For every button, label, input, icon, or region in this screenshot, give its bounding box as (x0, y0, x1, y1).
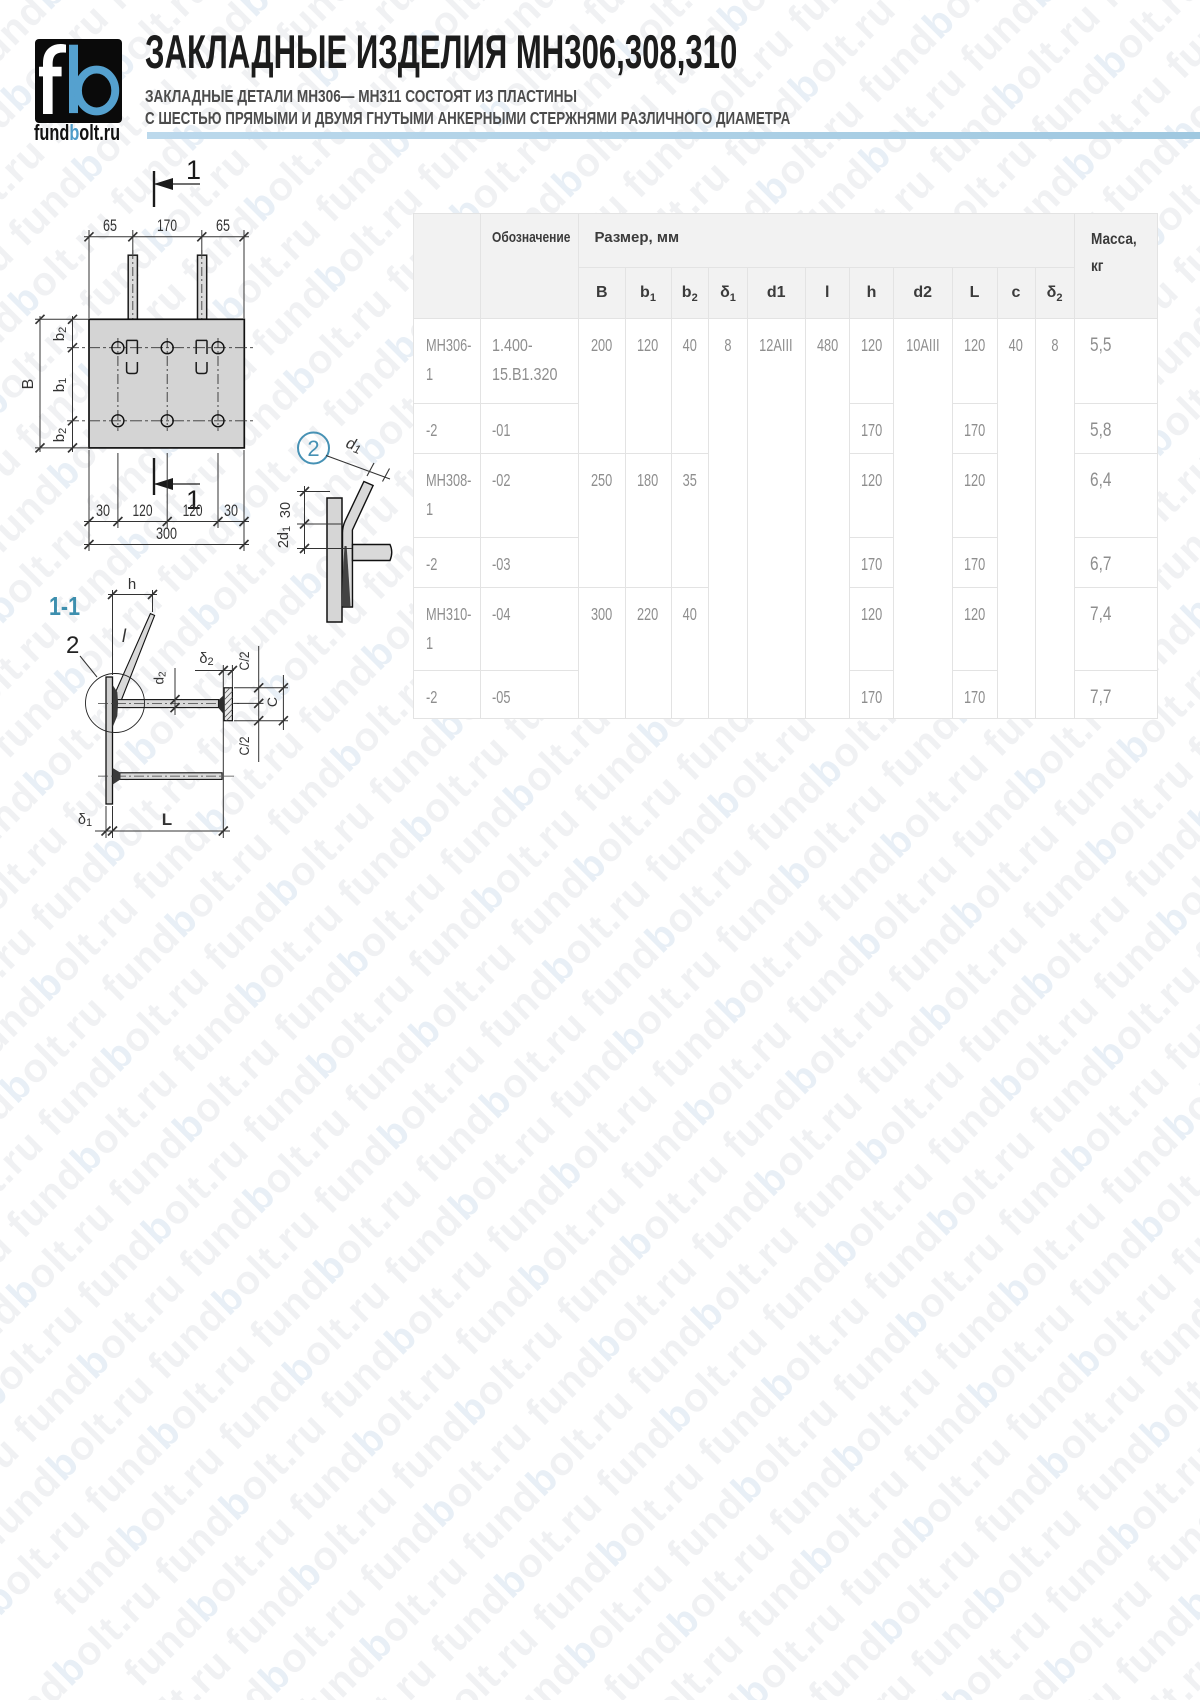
svg-text:b1: b1 (51, 378, 69, 392)
svg-text:d2: d2 (152, 671, 169, 685)
svg-text:B: B (20, 379, 37, 390)
svg-text:d1: d1 (343, 435, 364, 457)
svg-text:30: 30 (224, 502, 238, 520)
svg-text:δ1: δ1 (78, 812, 92, 829)
svg-text:2: 2 (66, 632, 79, 659)
svg-text:65: 65 (216, 217, 230, 235)
svg-text:C/2: C/2 (236, 651, 252, 670)
svg-text:2: 2 (307, 436, 319, 461)
svg-text:30: 30 (278, 502, 294, 518)
svg-text:30: 30 (96, 502, 110, 520)
svg-text:65: 65 (103, 217, 117, 235)
svg-text:C: C (264, 697, 280, 707)
svg-text:b2: b2 (51, 428, 69, 442)
svg-text:l: l (122, 626, 127, 646)
svg-text:120: 120 (183, 502, 203, 520)
svg-text:170: 170 (157, 217, 177, 235)
svg-text:b2: b2 (51, 327, 69, 341)
svg-text:2d1: 2d1 (276, 526, 293, 548)
svg-text:h: h (128, 576, 136, 593)
svg-text:δ2: δ2 (199, 651, 213, 668)
svg-text:C/2: C/2 (236, 736, 252, 755)
svg-text:120: 120 (133, 502, 153, 520)
svg-text:1-1: 1-1 (49, 591, 80, 621)
svg-text:L: L (162, 810, 172, 829)
svg-text:300: 300 (156, 525, 177, 543)
